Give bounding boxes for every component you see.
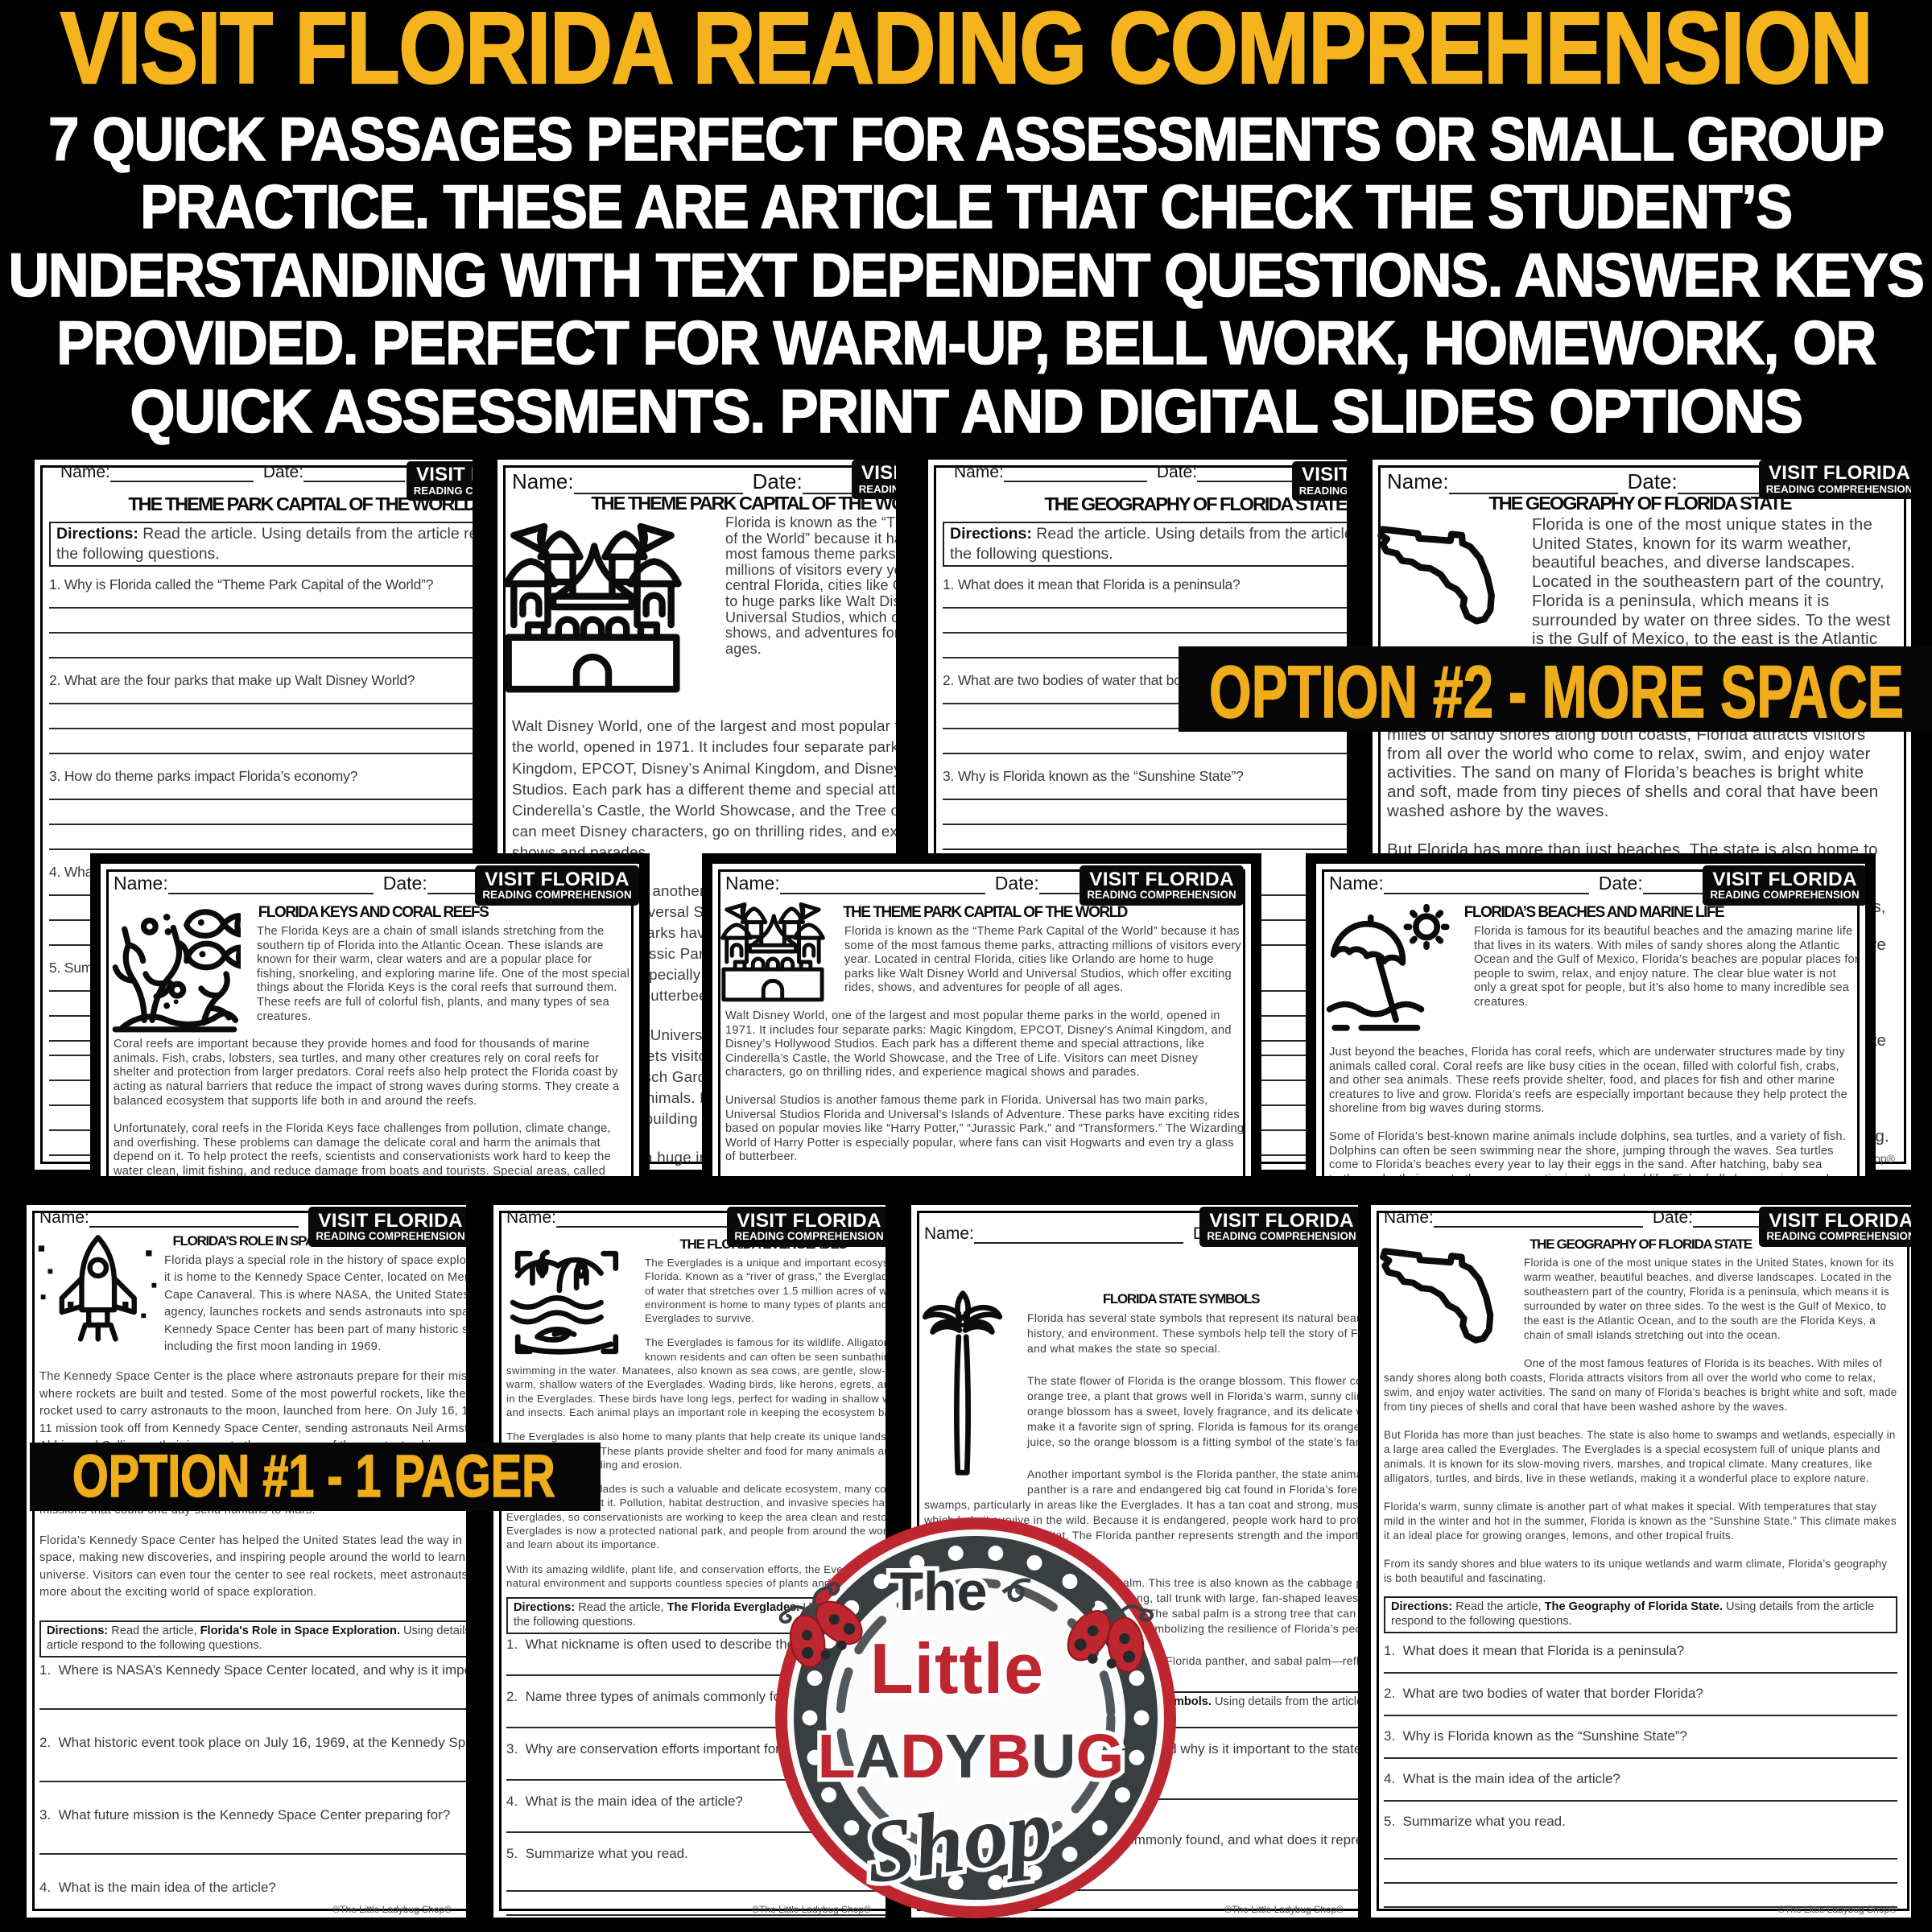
- svg-text:The: The: [890, 1561, 988, 1622]
- svg-text:Little: Little: [870, 1629, 1044, 1708]
- svg-text:LADYBUG: LADYBUG: [818, 1722, 1125, 1791]
